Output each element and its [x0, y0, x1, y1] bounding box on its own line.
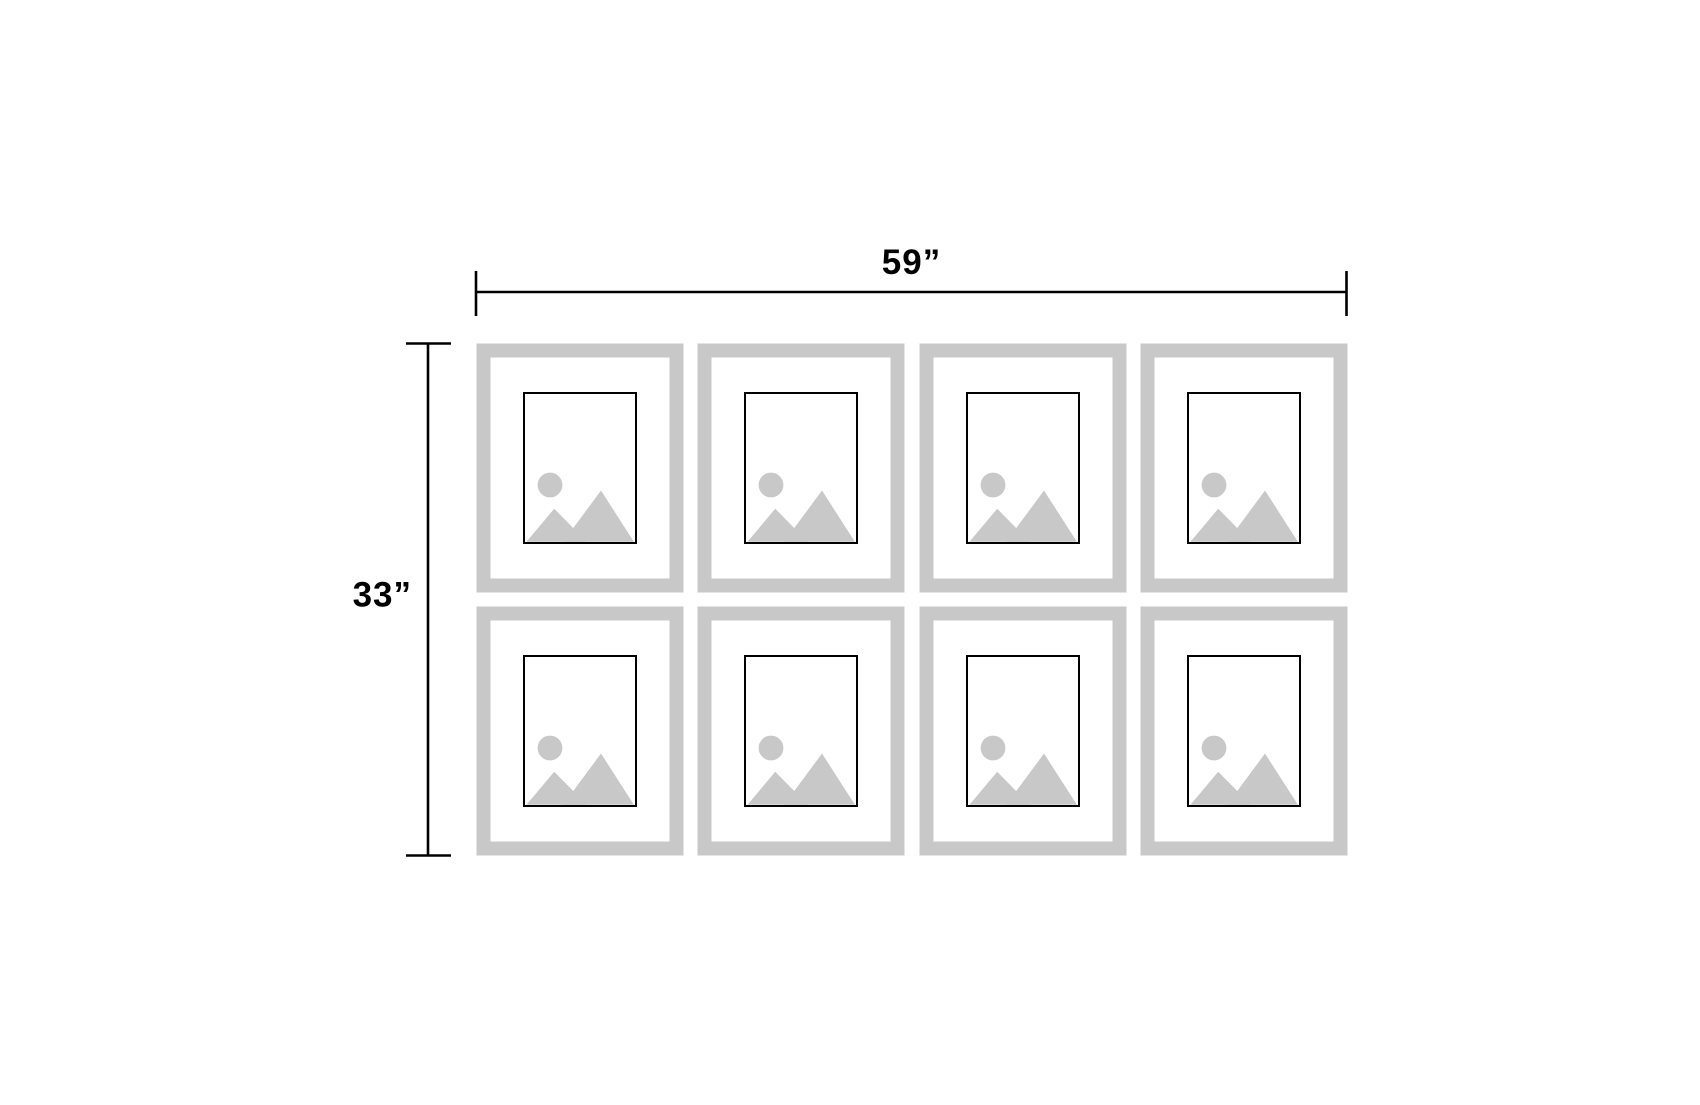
svg-text:33”: 33”	[353, 576, 412, 615]
svg-text:59”: 59”	[882, 243, 941, 282]
